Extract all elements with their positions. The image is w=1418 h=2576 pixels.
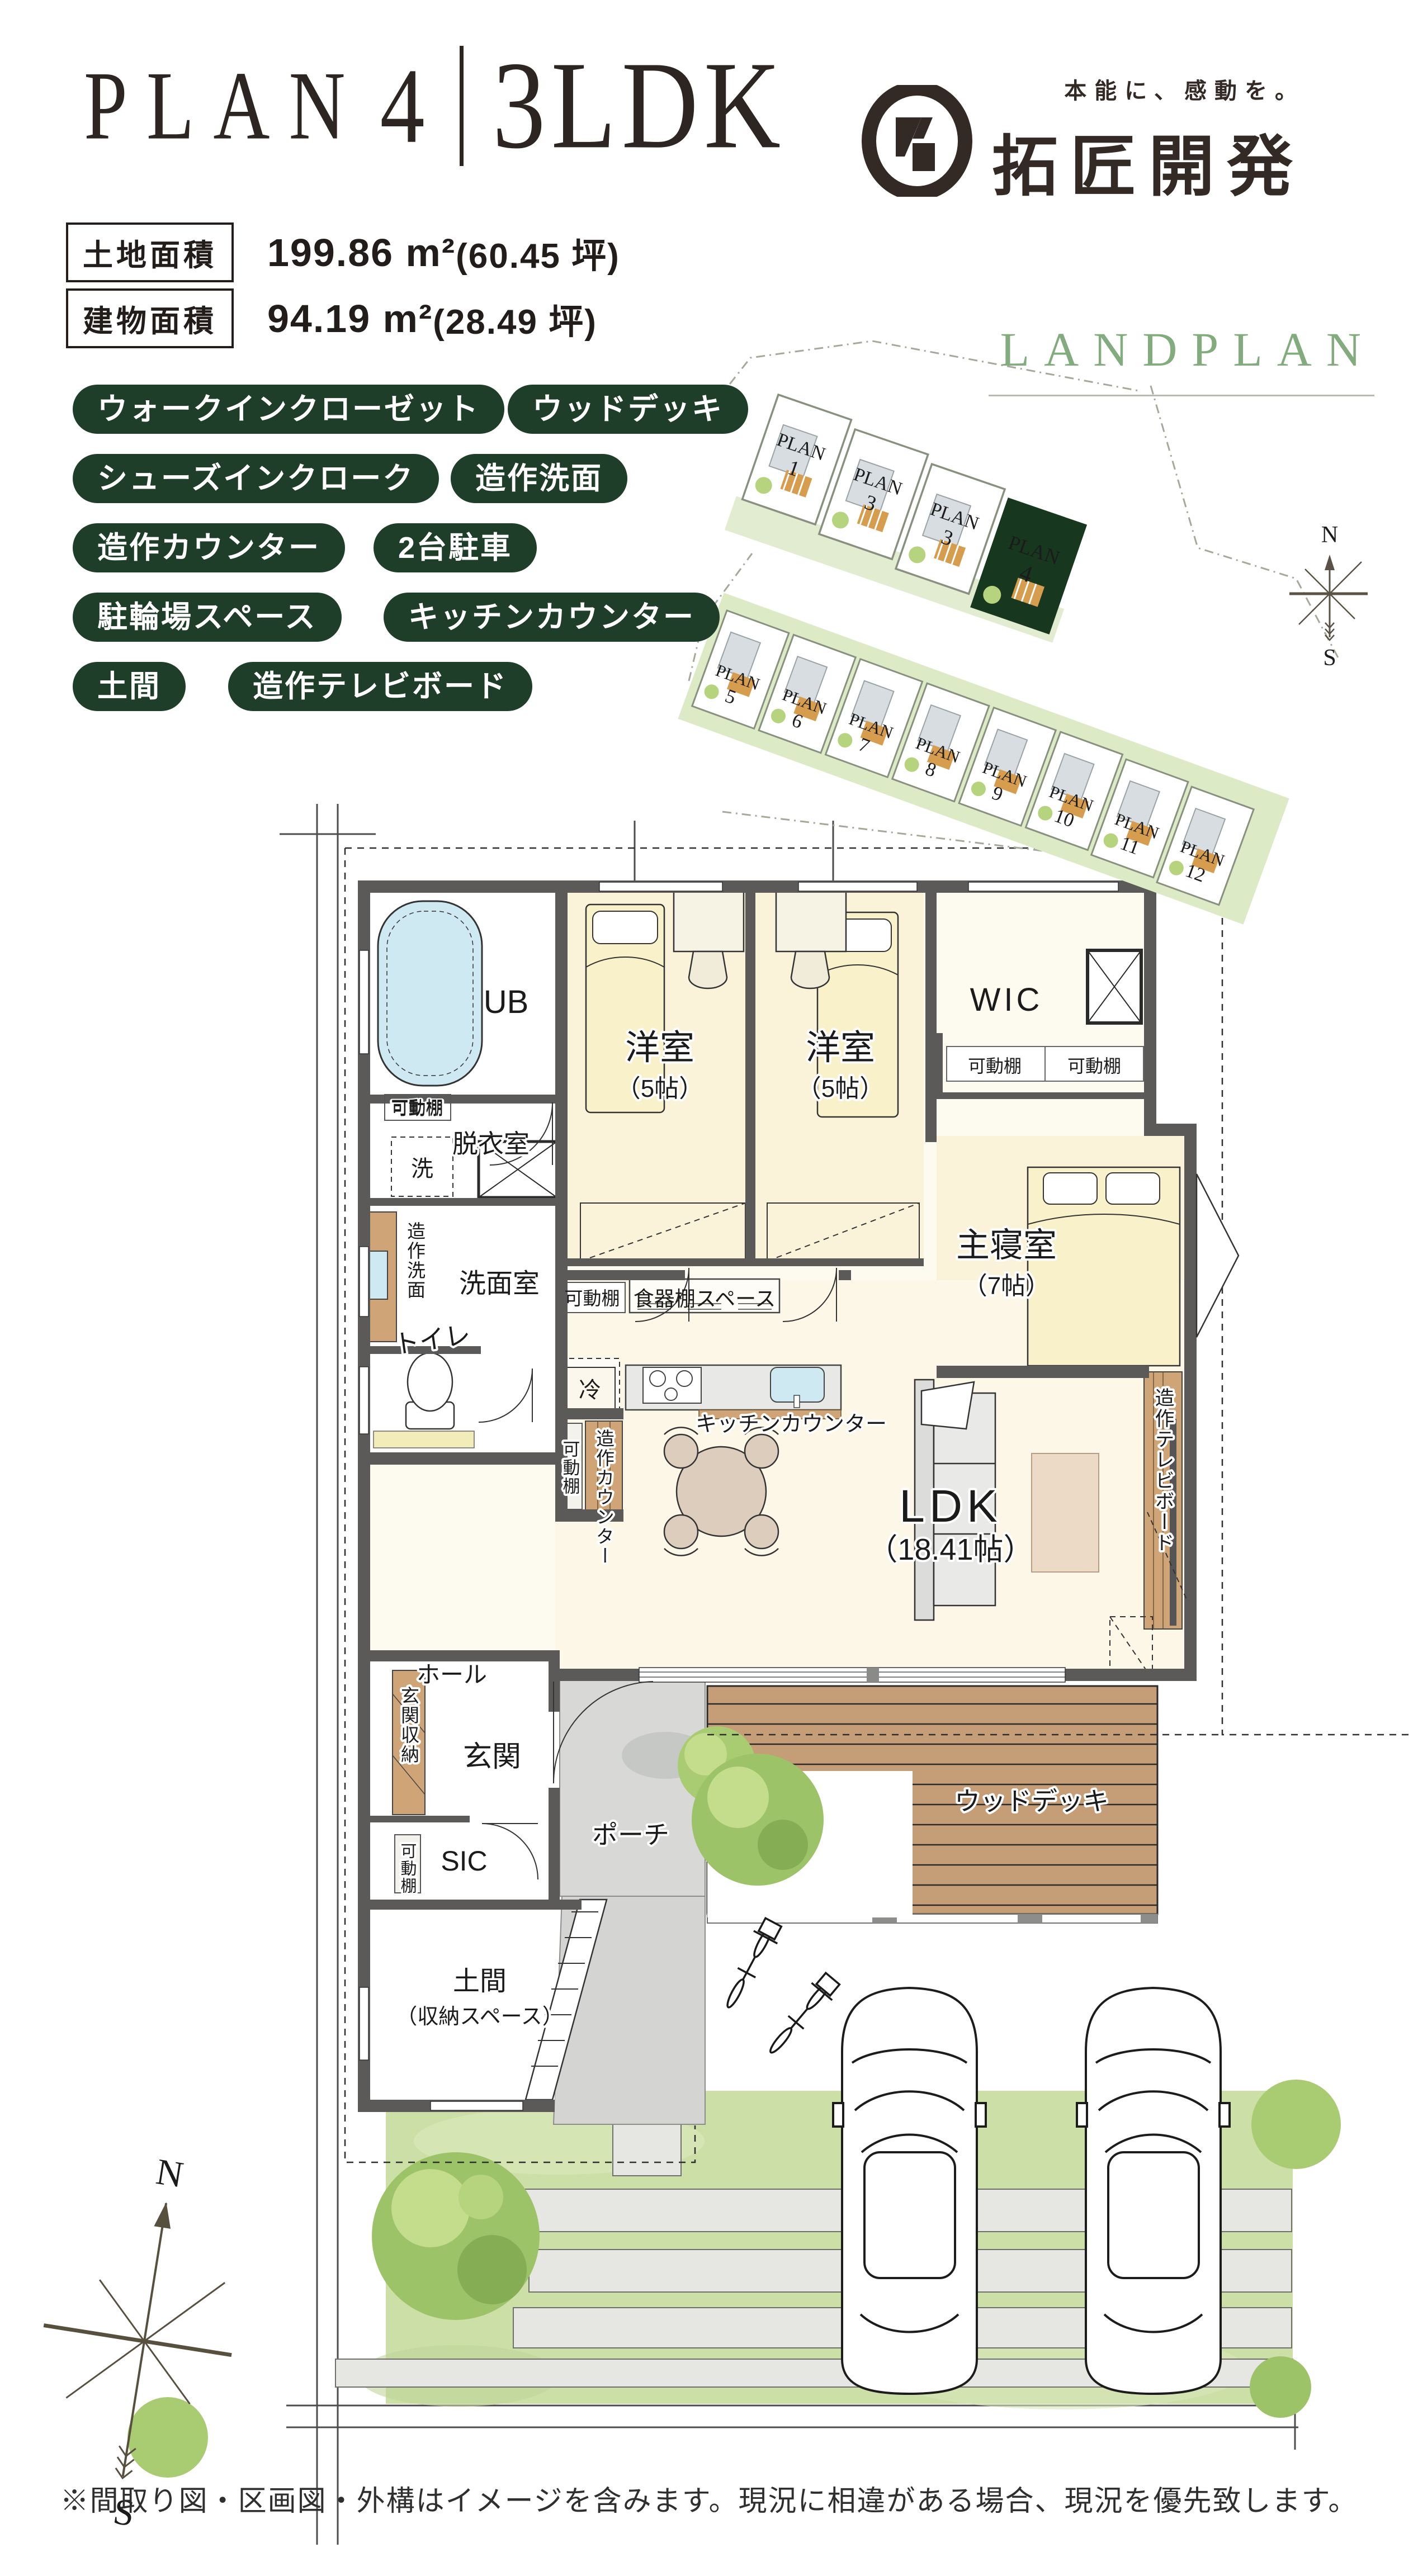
bicycle-icon: [716, 1916, 785, 2014]
tree: [372, 2152, 540, 2320]
company-name: 拓匠開発: [992, 113, 1305, 209]
page-title: PLAN 4 3LDK: [84, 45, 786, 167]
building-area-tsubo: (28.49 坪): [433, 293, 597, 344]
feature-walk-in-closet: ウォークインクローゼット: [73, 385, 504, 434]
feature-two-car-parking: 2台駐車: [374, 523, 537, 572]
svg-text:可動棚: 可動棚: [968, 1056, 1022, 1076]
svg-text:（5帖）: （5帖）: [797, 1075, 884, 1102]
landplan-compass: N S: [1289, 522, 1368, 671]
building-area-label: 建物面積: [66, 288, 234, 348]
label-genkan: 玄関: [463, 1741, 521, 1773]
bathtub: [378, 901, 482, 1086]
land-area-value: 199.86 m²: [267, 230, 456, 275]
company-logo: 本能に、感動を。 拓匠開発: [861, 73, 1387, 209]
svg-text:（5帖）: （5帖）: [616, 1075, 703, 1102]
svg-text:S: S: [1323, 645, 1336, 671]
svg-text:N: N: [153, 2151, 186, 2196]
label-yoshitsu-1: 洋室: [625, 1029, 694, 1067]
label-senmen: 洗面室: [459, 1269, 540, 1299]
landplan-title: LANDPLAN: [984, 321, 1376, 377]
rug: [1032, 1453, 1099, 1572]
logo-tagline: 本能に、感動を。: [992, 73, 1305, 105]
exterior-ground: [127, 1673, 1341, 2478]
feature-built-in-vanity: 造作洗面: [451, 454, 627, 503]
bay-window: [1197, 1174, 1239, 1337]
bush: [1251, 2080, 1341, 2169]
logo-mark-icon: [861, 85, 973, 197]
label-doma: 土間: [453, 1967, 507, 1996]
svg-text:（18.41帖）: （18.41帖）: [867, 1533, 1033, 1566]
label-hall: ホール: [417, 1661, 487, 1688]
title-divider: [460, 46, 464, 166]
label-zosaku-senmen: 造作洗面: [405, 1221, 426, 1300]
building-area-value: 94.19 m²: [267, 296, 433, 341]
land-area-label: 土地面積: [66, 222, 234, 282]
car-icon: [1077, 1988, 1230, 2394]
label-sic: SIC: [441, 1845, 487, 1877]
label-deck: ウッドデッキ: [954, 1787, 1109, 1816]
label-sen: 洗: [411, 1157, 433, 1181]
plan-type: 3LDK: [493, 34, 786, 177]
label-datsui: 脱衣室: [452, 1129, 530, 1158]
feature-shoes-in-cloak: シューズインクローク: [73, 454, 439, 503]
feature-tv-board: 造作テレビボード: [228, 662, 532, 711]
label-porch: ポーチ: [592, 1820, 669, 1849]
svg-text:可動棚: 可動棚: [565, 1288, 620, 1309]
label-shokki: 食器棚スペース: [634, 1287, 776, 1310]
feature-doma: 土間: [73, 662, 186, 711]
svg-text:可動棚: 可動棚: [391, 1098, 443, 1117]
building: UB 可動棚 可動棚 脱衣室 洗 造作洗面 洗面室 トイレ 洋室 （5帖） 洋室…: [358, 880, 1239, 2112]
bush: [1250, 2356, 1311, 2418]
label-yoshitsu-2: 洋室: [806, 1029, 875, 1067]
svg-text:可動棚: 可動棚: [398, 1843, 417, 1895]
bush: [127, 2397, 208, 2478]
building-area-row: 建物面積 94.19 m² (28.49 坪): [66, 288, 597, 348]
svg-text:（収納スペース）: （収納スペース）: [396, 2005, 563, 2029]
landplan-underline: [989, 395, 1374, 396]
feature-kitchen-counter: キッチンカウンター: [384, 593, 720, 642]
plan-word: PLAN: [84, 49, 365, 162]
svg-text:（7帖）: （7帖）: [963, 1272, 1050, 1300]
label-shushin: 主寝室: [956, 1227, 1057, 1264]
feature-wood-deck: ウッドデッキ: [508, 385, 748, 434]
land-area-tsubo: (60.45 坪): [456, 228, 620, 278]
svg-text:可動棚: 可動棚: [560, 1440, 580, 1495]
disclaimer: ※間取り図・区画図・外構はイメージを含みます。現況に相違がある場合、現況を優先致…: [0, 2478, 1418, 2519]
label-ldk: LDK: [899, 1481, 1002, 1532]
label-tv: 造作テレビボード: [1152, 1388, 1174, 1553]
svg-text:可動棚: 可動棚: [1067, 1056, 1121, 1076]
landplan-map: PLAN 1 PLAN 3 PLAN 3: [678, 341, 1368, 925]
bicycle-icon: [760, 1970, 843, 2061]
car-icon: [833, 1988, 986, 2394]
label-ub: UB: [484, 984, 529, 1020]
land-area-row: 土地面積 199.86 m² (60.45 坪): [66, 222, 620, 282]
label-rei: 冷: [579, 1378, 601, 1403]
feature-built-in-counter: 造作カウンター: [73, 523, 345, 572]
label-genkan-shuno: 玄関収納: [399, 1686, 419, 1764]
label-wic: WIC: [970, 982, 1043, 1018]
dining-table: [664, 1427, 778, 1555]
bed: [1028, 1167, 1180, 1366]
label-zosaku-counter: 造作カウンター: [594, 1429, 615, 1566]
toilet-shelf: [374, 1431, 474, 1448]
toilet-icon: [406, 1353, 454, 1429]
plan-number: 4: [380, 44, 425, 168]
label-kitchen-counter: キッチンカウンター: [696, 1413, 887, 1436]
feature-bicycle-space: 駐輪場スペース: [73, 593, 342, 642]
svg-text:N: N: [1321, 522, 1338, 548]
